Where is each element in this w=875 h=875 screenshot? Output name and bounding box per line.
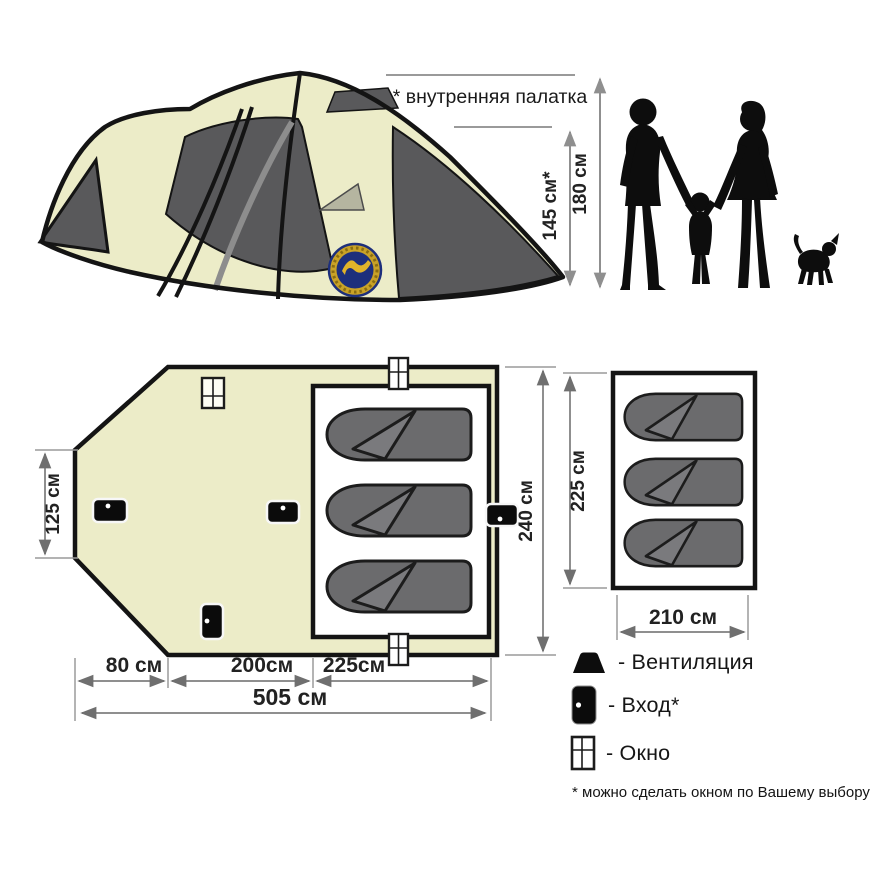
legend-item-ventilation: - Вентиляция xyxy=(570,650,754,675)
segment-label-80: 80 см xyxy=(106,654,162,677)
window-icon-top xyxy=(389,358,408,389)
brand-logo xyxy=(328,243,382,297)
man-silhouette xyxy=(620,99,694,291)
inner-depth-label: 225 см xyxy=(568,450,589,512)
legend: - Вентиляция - Вход* - Окно xyxy=(570,650,754,771)
floor-plan-main: 125 см 240 см 80 см 200см 225см 505 см xyxy=(20,355,565,730)
dog-silhouette xyxy=(794,233,839,285)
total-width-label: 505 см xyxy=(253,684,328,710)
legend-label-entrance: - Вход* xyxy=(608,693,680,718)
inner-height-label: 145 см* xyxy=(540,171,561,241)
window-icon-bottom xyxy=(389,634,408,665)
legend-label-ventilation: - Вентиляция xyxy=(618,650,754,675)
door-icon-bottom xyxy=(201,604,223,639)
sleeping-bag-2 xyxy=(625,459,743,505)
door-icon-right xyxy=(486,504,518,526)
door-icon xyxy=(570,684,598,726)
floor-plan-inner: 225 см 210 см xyxy=(555,350,805,650)
legend-item-entrance: - Вход* xyxy=(570,684,754,726)
inner-tent-note: * внутренняя палатка xyxy=(393,86,588,108)
sleeping-bag-3 xyxy=(625,520,743,566)
legend-label-window: - Окно xyxy=(606,741,670,766)
sleeping-bag-1 xyxy=(625,394,743,440)
door-icon-center xyxy=(267,501,299,523)
child-silhouette xyxy=(685,193,716,285)
sleeping-bag-1 xyxy=(327,409,471,460)
left-width-label: 125 см xyxy=(43,473,64,535)
family-silhouette xyxy=(600,92,845,297)
sleeping-bag-2 xyxy=(327,485,471,536)
outer-height-label: 180 см xyxy=(570,153,591,215)
depth-label: 240 см xyxy=(516,480,537,542)
segment-label-225: 225см xyxy=(323,654,385,677)
tent-specification-diagram: { "title": "Схема палатки", "palette": {… xyxy=(0,0,875,875)
woman-silhouette xyxy=(713,101,778,288)
segment-label-200: 200см xyxy=(231,654,293,677)
height-dimensions: * внутренняя палатка 145 см* 180 см xyxy=(378,56,618,304)
window-icon-left xyxy=(202,378,224,408)
window-icon xyxy=(570,735,596,771)
legend-footnote: * можно сделать окном по Вашему выбору xyxy=(572,784,872,801)
inner-width-label: 210 см xyxy=(649,606,717,629)
sleeping-bag-3 xyxy=(327,561,471,612)
legend-item-window: - Окно xyxy=(570,735,754,771)
door-icon-left xyxy=(93,499,127,522)
vent-icon xyxy=(570,651,608,674)
